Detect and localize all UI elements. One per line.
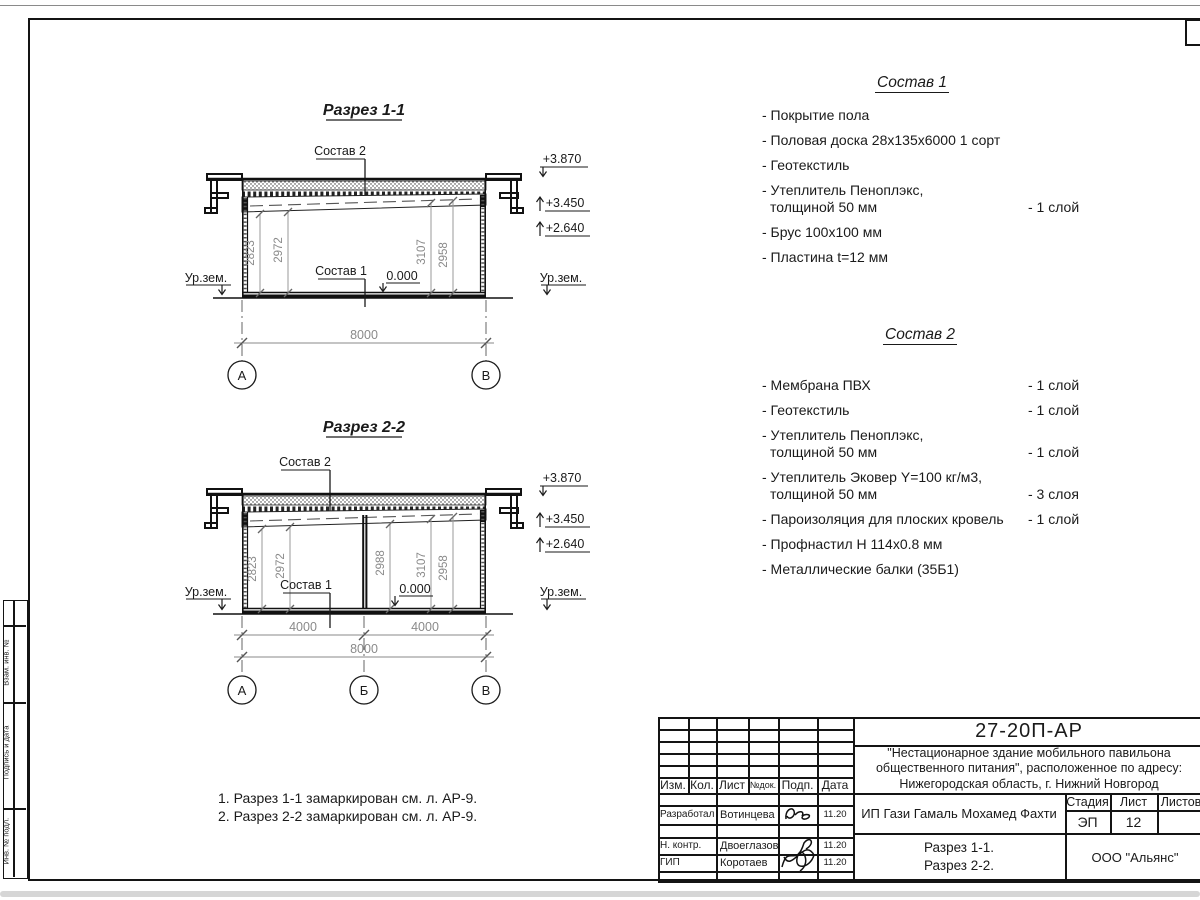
span-dim-2: 4000: [411, 620, 439, 634]
dim-2958: 2958: [438, 242, 450, 268]
callout-roof-label: Состав 2: [314, 144, 366, 158]
spec-item: - Пароизоляция для плоских кровель- 1 сл…: [762, 511, 1107, 528]
rev-header-izm: Изм.: [658, 777, 688, 793]
signature-developer: [778, 803, 818, 825]
paper-top-edge: [0, 5, 1200, 6]
axis-A: А: [238, 683, 247, 698]
callout-floor-label: Состав 1: [315, 264, 367, 278]
section-2-2-drawing: Разрез 2-2 Состав 2: [180, 405, 600, 720]
level-3870: +3.870: [543, 471, 582, 485]
title-block: Изм. Кол. Лист №док. Подп. Дата Разработ…: [658, 717, 1200, 883]
spec-list-2: Состав 2 - Мембрана ПВХ- 1 слой - Геотек…: [762, 326, 1107, 586]
dim-3107: 3107: [416, 239, 428, 265]
callout-roof-label: Состав 2: [279, 455, 331, 469]
overall-dim: 8000: [350, 328, 378, 342]
spec-2-title: Состав 2: [770, 326, 1070, 344]
ground-label-right: Ур.зем.: [540, 271, 582, 285]
spec-item: - Утеплитель Пеноплэкс,толщиной 50 мм- 1…: [762, 182, 1107, 216]
span-dim-1: 4000: [289, 620, 317, 634]
ground-label-left: Ур.зем.: [185, 585, 227, 599]
dim-3107: 3107: [416, 552, 428, 578]
notes: 1. Разрез 1-1 замаркирован см. л. АР-9. …: [218, 789, 477, 825]
spec-item: - Пластина t=12 мм: [762, 249, 1107, 266]
spec-list-1: Состав 1 - Покрытие пола - Половая доска…: [762, 74, 1107, 274]
axis-A: А: [238, 368, 247, 383]
rev-header-podp: Подп.: [778, 777, 817, 793]
level-3450: +3.450: [546, 512, 585, 526]
spec-item: - Брус 100х100 мм: [762, 224, 1107, 241]
sheet-title: Разрез 1-1. Разрез 2-2.: [853, 833, 1065, 881]
axis-Б: Б: [360, 683, 369, 698]
staff-date-developer: 11.20: [817, 805, 853, 824]
staff-name-gip: Коротаев: [720, 854, 778, 871]
dim-2823: 2823: [245, 240, 257, 266]
document-code: 27-20П-АР: [853, 717, 1200, 745]
stage-value: ЭП: [1065, 810, 1110, 833]
frame-left: [28, 18, 30, 881]
section-title: Разрез 1-1: [323, 102, 405, 119]
zero-level: 0.000: [399, 582, 430, 596]
frame-top: [28, 18, 1200, 20]
spec-item: - Геотекстиль: [762, 157, 1107, 174]
signature-ncontr-gip: [776, 833, 820, 877]
side-stamp-label-podpis: Подпись и дата: [2, 725, 11, 781]
company-name: ООО "Альянс": [1065, 833, 1200, 881]
rev-header-list: Лист: [716, 777, 748, 793]
section-title: Разрез 2-2: [323, 419, 405, 436]
spec-item: - Утеплитель Эковер Y=100 кг/м3,толщиной…: [762, 469, 1107, 503]
spec-item: - Половая доска 28х135х6000 1 сорт: [762, 132, 1107, 149]
ground-label-left: Ур.зем.: [185, 271, 227, 285]
level-3450: +3.450: [546, 196, 585, 210]
spec-1-title: Состав 1: [762, 74, 1062, 92]
axis-B: В: [482, 683, 491, 698]
spec-item: - Профнастил Н 114х0.8 мм: [762, 536, 1107, 553]
spec-item: - Мембрана ПВХ- 1 слой: [762, 377, 1107, 394]
callout-floor-label: Состав 1: [280, 578, 332, 592]
staff-role-developer: Разработал: [660, 805, 716, 824]
staff-role-gip: ГИП: [660, 854, 716, 871]
right-bracket: [486, 489, 523, 528]
rev-header-data: Дата: [817, 777, 853, 793]
spec-item: - Металлические балки (35Б1): [762, 561, 1107, 578]
section-1-1-drawing: Разрез 1-1 Состав 2 2823: [180, 85, 600, 400]
level-3870: +3.870: [543, 152, 582, 166]
staff-date-gip: 11.20: [817, 854, 853, 871]
project-name: "Нестационарное здание мобильного павиль…: [853, 745, 1200, 793]
rev-header-ndok: №док.: [748, 777, 778, 793]
zero-level: 0.000: [386, 269, 417, 283]
sheets-label: Листов: [1157, 793, 1200, 810]
corner-code-box: [1185, 19, 1200, 46]
dim-2972: 2972: [273, 237, 285, 263]
dim-2958: 2958: [438, 555, 450, 581]
level-2640: +2.640: [546, 537, 585, 551]
dim-2988: 2988: [375, 550, 387, 576]
left-bracket: [205, 489, 242, 528]
left-bracket: [205, 174, 242, 213]
spec-item: - Утеплитель Пеноплэкс,толщиной 50 мм- 1…: [762, 427, 1107, 461]
drawing-sheet: { "side_strip": { "labels": ["Взам. инв.…: [0, 0, 1200, 900]
sheet-label: Лист: [1110, 793, 1157, 810]
staff-role-ncontr: Н. контр.: [660, 837, 716, 854]
rev-header-kol: Кол.: [688, 777, 716, 793]
stage-label: Стадия: [1065, 793, 1110, 810]
dim-2823: 2823: [247, 556, 259, 582]
side-stamp-label-vzam: Взам. инв. №: [2, 639, 11, 687]
axis-B: В: [482, 368, 491, 383]
overall-dim: 8000: [350, 642, 378, 656]
paper-bottom-edge: [0, 891, 1200, 897]
staff-date-ncontr: 11.20: [817, 837, 853, 854]
spec-item: - Покрытие пола: [762, 107, 1107, 124]
spec-item: - Геотекстиль- 1 слой: [762, 402, 1107, 419]
dim-2972: 2972: [275, 553, 287, 579]
right-bracket: [486, 174, 523, 213]
client-name: ИП Гази Гамаль Мохамед Фахти: [853, 793, 1065, 833]
side-stamp-label-inv: Инв. № подл.: [2, 821, 11, 865]
level-2640: +2.640: [546, 221, 585, 235]
sheet-number: 12: [1110, 810, 1157, 833]
staff-name-developer: Вотинцева: [720, 805, 778, 824]
note-2: 2. Разрез 2-2 замаркирован см. л. АР-9.: [218, 807, 477, 825]
ground-label-right: Ур.зем.: [540, 585, 582, 599]
note-1: 1. Разрез 1-1 замаркирован см. л. АР-9.: [218, 789, 477, 807]
staff-name-ncontr: Двоеглазов: [720, 837, 778, 854]
